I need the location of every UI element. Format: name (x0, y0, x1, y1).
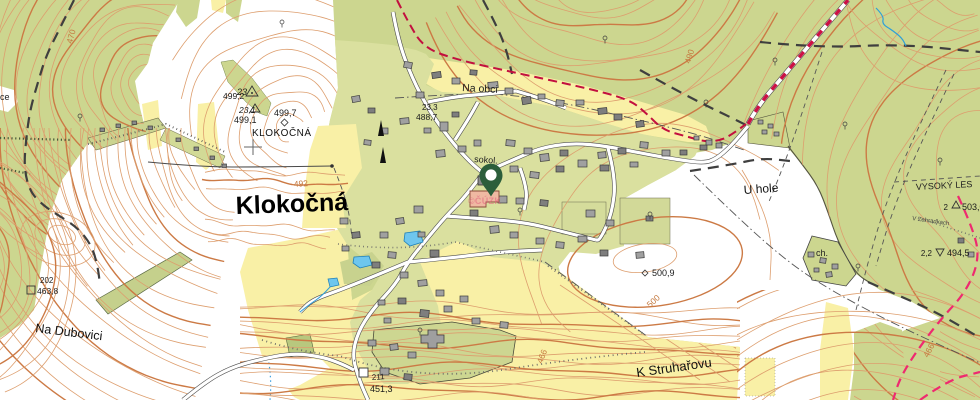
svg-text:499,7: 499,7 (274, 108, 297, 118)
svg-text:2: 2 (944, 203, 949, 212)
svg-text:463,8: 463,8 (37, 286, 59, 296)
svg-text:500,9: 500,9 (652, 268, 675, 278)
svg-text:488,7: 488,7 (416, 112, 438, 122)
svg-text:211: 211 (372, 372, 386, 382)
svg-text:KLOKOČNÁ: KLOKOČNÁ (252, 126, 312, 139)
svg-text:499,1: 499,1 (234, 115, 257, 125)
svg-text:492: 492 (293, 178, 308, 189)
svg-text:Klokočná: Klokočná (235, 188, 349, 220)
svg-text:ce: ce (0, 92, 10, 102)
svg-text:503,0: 503,0 (962, 202, 980, 212)
svg-text:ch.: ch. (816, 248, 828, 258)
svg-text:2,2: 2,2 (921, 249, 933, 258)
svg-text:494,5: 494,5 (947, 248, 970, 258)
svg-text:202: 202 (40, 276, 54, 285)
svg-text:sokol.: sokol. (474, 154, 498, 166)
svg-text:499,2: 499,2 (223, 91, 245, 101)
svg-text:U hole: U hole (743, 181, 779, 197)
svg-text:Na obci: Na obci (462, 82, 498, 96)
svg-text:23,1: 23,1 (238, 105, 256, 115)
svg-text:23,3: 23,3 (422, 103, 438, 112)
svg-text:451,3: 451,3 (370, 384, 393, 394)
svg-text:©ČÚZK: ©ČÚZK (468, 195, 501, 206)
